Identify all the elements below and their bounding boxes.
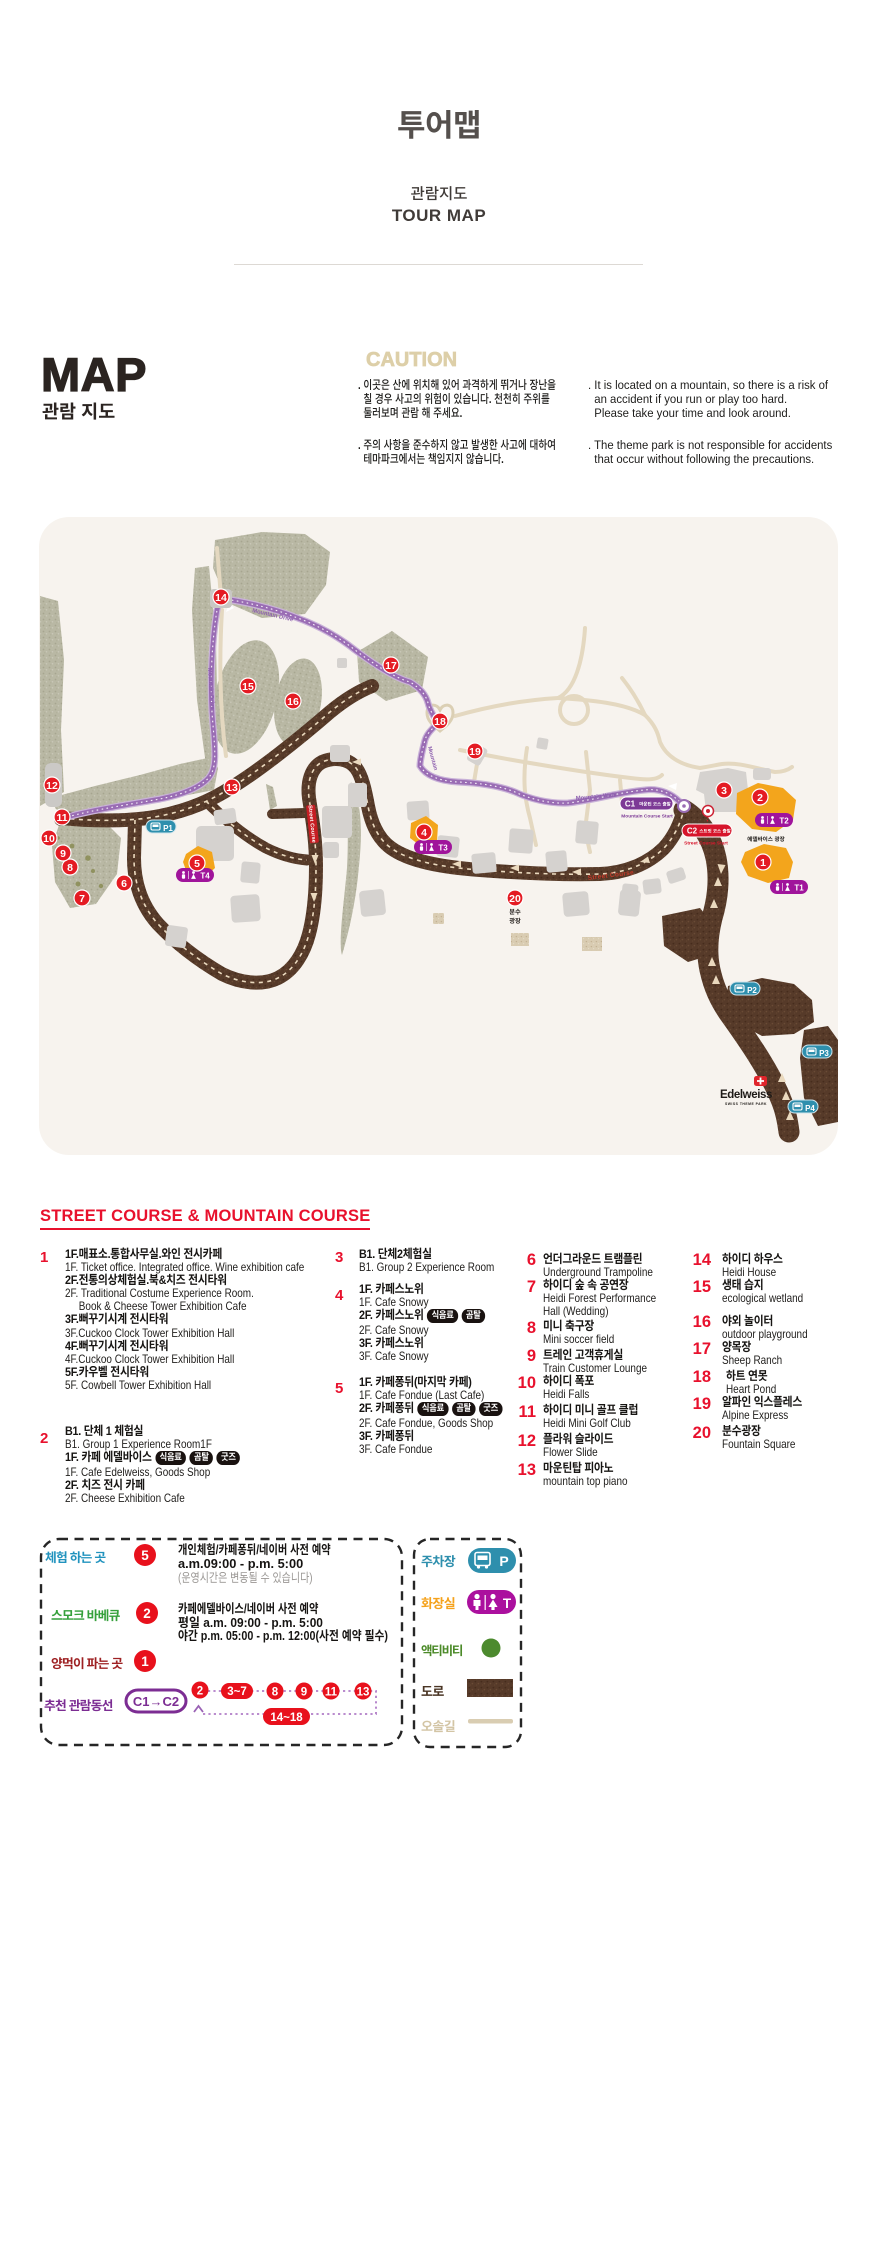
svg-text:C1: C1 (625, 800, 636, 809)
svg-text:분수: 분수 (509, 908, 521, 916)
svg-text:17: 17 (385, 660, 397, 672)
svg-text:9: 9 (301, 1687, 307, 1699)
svg-text:9: 9 (60, 848, 66, 860)
svg-text:T1: T1 (794, 884, 804, 893)
svg-text:P3: P3 (819, 1049, 829, 1058)
svg-text:광장: 광장 (509, 917, 521, 925)
svg-text:마운틴 코스 출발: 마운틴 코스 출발 (639, 802, 670, 807)
svg-text:6: 6 (121, 878, 127, 890)
svg-text:T4: T4 (200, 872, 210, 881)
svg-text:2: 2 (197, 1686, 203, 1698)
svg-text:8: 8 (272, 1687, 279, 1699)
svg-text:Edelweiss: Edelweiss (720, 1089, 772, 1101)
svg-text:14: 14 (215, 592, 227, 604)
svg-text:Street Course Start: Street Course Start (684, 841, 728, 847)
svg-text:SWISS THEME PARK: SWISS THEME PARK (725, 1102, 767, 1106)
svg-text:Mountain Course Start: Mountain Course Start (621, 814, 673, 820)
svg-text:7: 7 (79, 893, 85, 905)
svg-text:C2: C2 (687, 827, 698, 836)
svg-text:에델바이스 광장: 에델바이스 광장 (747, 836, 785, 843)
svg-text:11: 11 (325, 1687, 338, 1699)
svg-text:T2: T2 (779, 817, 789, 826)
svg-text:1: 1 (141, 1654, 149, 1669)
svg-text:18: 18 (434, 716, 446, 728)
svg-text:13: 13 (357, 1687, 370, 1699)
svg-text:1: 1 (760, 857, 766, 869)
svg-text:5: 5 (194, 858, 200, 870)
svg-text:12: 12 (46, 780, 58, 792)
svg-text:C1→C2: C1→C2 (133, 1694, 179, 1709)
svg-text:13: 13 (226, 782, 238, 794)
svg-text:3: 3 (721, 785, 727, 797)
svg-text:16: 16 (287, 696, 299, 708)
svg-text:스트릿 코스 출발: 스트릿 코스 출발 (699, 829, 730, 834)
svg-text:14~18: 14~18 (270, 1712, 303, 1724)
svg-text:T3: T3 (438, 844, 448, 853)
svg-text:T: T (503, 1596, 512, 1611)
svg-text:19: 19 (469, 746, 481, 758)
svg-text:P2: P2 (747, 986, 757, 995)
svg-text:8: 8 (67, 862, 73, 874)
svg-text:P: P (499, 1553, 508, 1569)
svg-text:2: 2 (143, 1606, 151, 1621)
svg-text:P1: P1 (163, 824, 173, 833)
svg-text:5: 5 (141, 1548, 149, 1563)
svg-text:2: 2 (757, 792, 763, 804)
svg-text:11: 11 (56, 812, 67, 824)
svg-text:20: 20 (509, 893, 521, 905)
svg-text:3~7: 3~7 (227, 1686, 247, 1698)
svg-text:4: 4 (421, 827, 427, 839)
svg-text:10: 10 (43, 833, 55, 845)
svg-text:P4: P4 (805, 1104, 815, 1113)
svg-text:15: 15 (242, 681, 254, 693)
